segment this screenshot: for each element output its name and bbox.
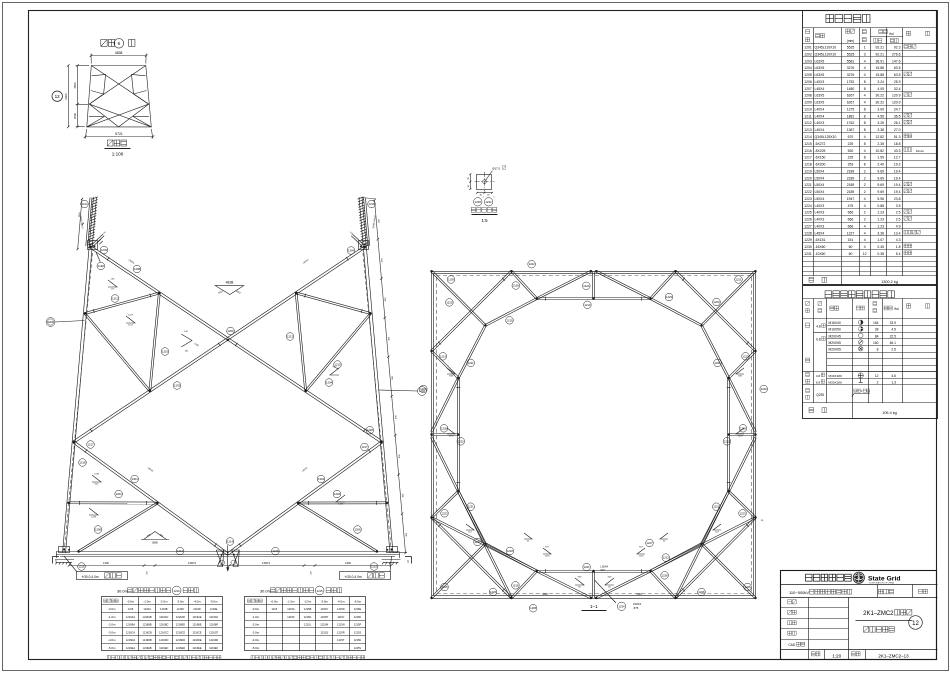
svg-text:(kg): (kg) <box>894 307 899 311</box>
svg-text:1216CF: 1216CF <box>209 630 219 634</box>
svg-text:-0.0m: -0.0m <box>252 607 260 611</box>
svg-text:19.4: 19.4 <box>894 176 901 180</box>
svg-text:1221: 1221 <box>715 361 721 365</box>
svg-text:1219: 1219 <box>804 169 812 173</box>
svg-text:4: 4 <box>864 245 866 249</box>
svg-text:1215M: 1215M <box>320 623 328 627</box>
svg-text:1213: 1213 <box>804 128 812 132</box>
svg-text:L50X4: L50X4 <box>815 176 825 180</box>
svg-text:1218: 1218 <box>80 461 86 465</box>
svg-text:160: 160 <box>873 341 879 345</box>
svg-text:875: 875 <box>634 606 639 610</box>
svg-text:L45X4: L45X4 <box>815 231 825 235</box>
svg-text:1226: 1226 <box>699 590 705 594</box>
svg-text:2.40: 2.40 <box>877 163 884 167</box>
svg-text:-5.0m: -5.0m <box>108 646 116 650</box>
svg-text:1221: 1221 <box>736 278 742 282</box>
svg-text:1203: 1203 <box>804 59 812 63</box>
svg-text:1216DB: 1216DB <box>142 638 152 642</box>
svg-text:1229: 1229 <box>804 238 812 242</box>
svg-text:9.69: 9.69 <box>877 176 884 180</box>
svg-text:-0.0m: -0.0m <box>271 599 279 603</box>
svg-text:1230: 1230 <box>804 245 812 249</box>
svg-text:1216: 1216 <box>369 202 375 206</box>
svg-text:84: 84 <box>875 334 879 338</box>
svg-text:1216BC: 1216BC <box>159 623 168 627</box>
svg-text:5.4: 5.4 <box>896 252 901 256</box>
svg-text:5.96: 5.96 <box>877 197 884 201</box>
svg-text:1216BF: 1216BF <box>209 623 218 627</box>
svg-text:-3.0m: -3.0m <box>321 599 329 603</box>
svg-text:8: 8 <box>864 121 866 125</box>
svg-text:1300: 1300 <box>345 561 351 565</box>
svg-text:Q345L125X10: Q345L125X10 <box>815 135 837 139</box>
svg-text:※30.0-4.0m: ※30.0-4.0m <box>81 575 98 579</box>
svg-text:1210: 1210 <box>162 350 168 354</box>
svg-text:1216AE: 1216AE <box>192 615 201 619</box>
svg-text:4.9: 4.9 <box>896 224 901 228</box>
svg-text:1218: 1218 <box>804 163 812 167</box>
svg-text:164: 164 <box>873 321 879 325</box>
svg-text:L63X5: L63X5 <box>815 59 825 63</box>
svg-text:1300.2 kg: 1300.2 kg <box>881 280 898 284</box>
svg-text:2189: 2189 <box>847 183 855 187</box>
svg-text:1201: 1201 <box>804 46 812 50</box>
svg-text:1347: 1347 <box>128 314 134 316</box>
svg-text:1.23: 1.23 <box>877 211 884 215</box>
svg-text:1216BE: 1216BE <box>192 623 201 627</box>
svg-text:1881: 1881 <box>847 114 855 118</box>
svg-text:3276: 3276 <box>847 66 855 70</box>
svg-text:10mm: 10mm <box>916 149 925 153</box>
svg-text:1211: 1211 <box>804 114 811 118</box>
svg-text:63.5: 63.5 <box>894 66 901 70</box>
svg-text:2189: 2189 <box>847 169 855 173</box>
svg-text:3: 3 <box>864 52 866 56</box>
svg-text:2K1–ZMC2–13: 2K1–ZMC2–13 <box>878 653 909 658</box>
svg-text:*: * <box>483 197 484 200</box>
svg-text:1: 1 <box>864 46 866 50</box>
svg-text:1304: 1304 <box>318 477 324 481</box>
svg-text:3.24: 3.24 <box>877 80 884 84</box>
svg-text:L40X3: L40X3 <box>815 80 825 84</box>
svg-text:1203: 1203 <box>761 387 767 391</box>
svg-text:1215C: 1215C <box>320 607 328 611</box>
svg-text:1216CC: 1216CC <box>159 630 169 634</box>
svg-text:Q345L110X10: Q345L110X10 <box>815 46 837 50</box>
svg-text:1222: 1222 <box>529 262 535 266</box>
svg-text:1150: 1150 <box>636 593 642 596</box>
svg-text:27.0: 27.0 <box>894 128 901 132</box>
svg-text:1227: 1227 <box>847 231 855 235</box>
svg-text:12: 12 <box>875 374 879 378</box>
svg-text:M16X40: M16X40 <box>829 321 841 325</box>
svg-text:1217: 1217 <box>475 540 481 544</box>
svg-text:1215G: 1215G <box>304 615 312 619</box>
svg-text:1216: 1216 <box>174 589 180 593</box>
svg-text:L50X4: L50X4 <box>815 197 825 201</box>
svg-text:1211: 1211 <box>112 297 118 301</box>
svg-text:M20X45: M20X45 <box>829 334 841 338</box>
svg-text:2860: 2860 <box>152 541 158 545</box>
svg-text:32.4: 32.4 <box>894 87 901 91</box>
svg-text:-1.0m: -1.0m <box>143 599 151 603</box>
svg-text:1200: 1200 <box>545 555 551 557</box>
svg-text:L40X3: L40X3 <box>815 218 825 222</box>
svg-text:1215F: 1215F <box>287 615 295 619</box>
svg-text:1210: 1210 <box>804 108 812 112</box>
svg-text:4.05: 4.05 <box>877 87 884 91</box>
svg-text:60: 60 <box>849 245 853 249</box>
svg-text:15.88: 15.88 <box>876 73 885 77</box>
svg-text:5525: 5525 <box>847 52 855 56</box>
svg-text:1.07: 1.07 <box>877 238 884 242</box>
svg-text:6267: 6267 <box>847 94 855 98</box>
svg-text:1300.5: 1300.5 <box>188 561 196 565</box>
svg-text:1215A: 1215A <box>287 607 295 611</box>
svg-text:2: 2 <box>864 218 866 222</box>
svg-text:19.4: 19.4 <box>894 190 901 194</box>
svg-text:M16X50: M16X50 <box>829 328 841 332</box>
svg-text:4: 4 <box>864 135 866 139</box>
svg-text:24.7: 24.7 <box>894 108 901 112</box>
svg-text:-10X60: -10X60 <box>815 252 826 256</box>
svg-text:1216: 1216 <box>512 583 518 587</box>
svg-text:3.36: 3.36 <box>877 231 884 235</box>
svg-text:1216CD: 1216CD <box>176 630 186 634</box>
svg-text:-0.0m: -0.0m <box>127 599 135 603</box>
svg-text:2.5: 2.5 <box>896 211 901 215</box>
svg-text:1203: 1203 <box>420 387 426 391</box>
svg-text:530: 530 <box>848 149 854 153</box>
svg-text:L63X5: L63X5 <box>815 94 825 98</box>
svg-text:10.82: 10.82 <box>876 149 885 153</box>
svg-text:1213: 1213 <box>743 354 749 358</box>
svg-text:23.8: 23.8 <box>894 197 901 201</box>
svg-text:L40X4: L40X4 <box>815 114 825 118</box>
svg-text:1215P: 1215P <box>354 623 362 627</box>
svg-text:1300.5: 1300.5 <box>262 561 270 565</box>
svg-text:M20X65: M20X65 <box>829 348 841 352</box>
svg-text:3276: 3276 <box>847 73 855 77</box>
svg-text:1215L: 1215L <box>304 623 312 627</box>
svg-text:8: 8 <box>877 348 879 352</box>
svg-text:15.88: 15.88 <box>876 66 885 70</box>
svg-text:1752: 1752 <box>847 80 855 84</box>
svg-text:1213: 1213 <box>584 303 590 307</box>
svg-text:18.8: 18.8 <box>894 142 901 146</box>
svg-text:L63X5: L63X5 <box>815 73 825 77</box>
svg-text:666: 666 <box>848 211 854 215</box>
svg-text:1.23: 1.23 <box>877 218 884 222</box>
svg-text:-1.0m: -1.0m <box>252 615 260 619</box>
svg-text:1204: 1204 <box>804 66 812 70</box>
svg-text:4: 4 <box>864 149 866 153</box>
svg-text:1216: 1216 <box>804 149 812 153</box>
svg-text:(mm): (mm) <box>847 39 854 43</box>
svg-text:2: 2 <box>864 211 866 215</box>
svg-text:1203: 1203 <box>116 492 122 496</box>
svg-text:1.23: 1.23 <box>877 224 884 228</box>
svg-text:M20X55: M20X55 <box>829 341 841 345</box>
svg-text:1203: 1203 <box>174 384 180 388</box>
svg-text:4: 4 <box>864 204 866 208</box>
svg-text:-2.0m: -2.0m <box>252 623 260 627</box>
svg-text:-6X200: -6X200 <box>815 163 826 167</box>
svg-text:1367: 1367 <box>847 128 855 132</box>
svg-text:1215Q: 1215Q <box>320 630 328 634</box>
svg-text:-6X151: -6X151 <box>815 238 826 242</box>
svg-text:X: X <box>861 389 863 393</box>
svg-text:2: 2 <box>864 190 866 194</box>
svg-text:1231: 1231 <box>804 252 812 256</box>
svg-text:666: 666 <box>848 218 854 222</box>
svg-text:2: 2 <box>877 381 879 385</box>
svg-text:151: 151 <box>848 238 854 242</box>
svg-text:1216EE: 1216EE <box>192 646 201 650</box>
svg-text:1220: 1220 <box>441 426 447 430</box>
svg-text:-0.0m: -0.0m <box>108 607 116 611</box>
svg-text:1202: 1202 <box>804 52 812 56</box>
svg-text:4: 4 <box>864 224 866 228</box>
svg-text:1226: 1226 <box>804 218 812 222</box>
svg-text:3500: 3500 <box>73 82 77 89</box>
svg-text:30.22: 30.22 <box>876 94 885 98</box>
svg-text:1201: 1201 <box>48 320 54 324</box>
svg-text:1216EB: 1216EB <box>143 646 152 650</box>
svg-text:1218: 1218 <box>507 549 513 553</box>
svg-text:92.21: 92.21 <box>876 46 885 50</box>
svg-text:1223: 1223 <box>663 556 669 560</box>
svg-text:2.35: 2.35 <box>877 142 884 146</box>
svg-text:4: 4 <box>864 73 866 77</box>
svg-text:L63X5: L63X5 <box>815 66 825 70</box>
svg-text:6000: 6000 <box>64 93 68 100</box>
svg-text:-6X272: -6X272 <box>815 142 826 146</box>
svg-text:1212: 1212 <box>287 335 293 339</box>
svg-text:12: 12 <box>912 621 919 627</box>
svg-text:2189: 2189 <box>847 176 855 180</box>
svg-text:8: 8 <box>864 156 866 160</box>
svg-text:2500: 2500 <box>73 112 77 119</box>
svg-text:1215: 1215 <box>371 565 377 569</box>
svg-text:4838: 4838 <box>115 51 123 55</box>
svg-text:5721: 5721 <box>115 132 123 136</box>
svg-text:1203: 1203 <box>101 248 107 252</box>
svg-text:8: 8 <box>864 114 866 118</box>
svg-text:1050: 1050 <box>449 435 455 437</box>
svg-text:1227: 1227 <box>804 224 812 228</box>
svg-text:1:100: 1:100 <box>112 152 124 157</box>
svg-text:8: 8 <box>864 163 866 167</box>
svg-text:1222: 1222 <box>804 190 812 194</box>
svg-text:225: 225 <box>848 156 854 160</box>
svg-text:9.69: 9.69 <box>877 183 884 187</box>
svg-text:1206: 1206 <box>804 80 812 84</box>
svg-text:3.38: 3.38 <box>877 128 884 132</box>
svg-text:1216EF: 1216EF <box>209 646 218 650</box>
svg-text:1221: 1221 <box>804 183 812 187</box>
svg-text:36.91: 36.91 <box>876 59 885 63</box>
svg-text:1223: 1223 <box>740 511 746 515</box>
svg-text:-8X225: -8X225 <box>815 149 826 153</box>
svg-text:1221: 1221 <box>468 505 474 509</box>
svg-text:1215: 1215 <box>804 142 812 146</box>
svg-text:1222: 1222 <box>724 439 730 443</box>
svg-text:1214: 1214 <box>82 202 88 206</box>
svg-text:1216CE: 1216CE <box>192 630 202 634</box>
svg-text:1.59: 1.59 <box>877 156 884 160</box>
svg-text:1216CB: 1216CB <box>142 630 152 634</box>
svg-text:30.0m: 30.0m <box>260 589 271 594</box>
svg-text:L50X4: L50X4 <box>815 183 825 187</box>
svg-text:60: 60 <box>849 252 853 256</box>
svg-text:120.9: 120.9 <box>892 101 901 105</box>
svg-text:8: 8 <box>864 87 866 91</box>
svg-text:670: 670 <box>848 135 854 139</box>
svg-text:4.8: 4.8 <box>816 325 821 329</box>
svg-text:1–1: 1–1 <box>590 604 598 609</box>
svg-text:1212: 1212 <box>804 121 812 125</box>
svg-text:1:5: 1:5 <box>481 218 488 223</box>
svg-text:30.22: 30.22 <box>876 101 885 105</box>
svg-text:0.38: 0.38 <box>877 252 884 256</box>
svg-text:1226: 1226 <box>490 590 496 594</box>
svg-text:1136: 1136 <box>513 284 519 288</box>
svg-text:1139: 1139 <box>448 278 454 282</box>
svg-text:-6X150: -6X150 <box>815 156 826 160</box>
svg-text:4838: 4838 <box>226 281 234 285</box>
svg-text:1215B: 1215B <box>304 607 312 611</box>
svg-text:1215T: 1215T <box>337 638 345 642</box>
svg-text:105.4 kg: 105.4 kg <box>882 411 897 415</box>
svg-text:475: 475 <box>848 204 854 208</box>
svg-text:-4.0m: -4.0m <box>252 638 260 642</box>
svg-text:State Grid: State Grid <box>868 575 900 582</box>
svg-text:-3.0m: -3.0m <box>177 599 185 603</box>
svg-text:1215: 1215 <box>79 565 85 569</box>
svg-text:-4.0m: -4.0m <box>337 599 345 603</box>
svg-text:1215S: 1215S <box>354 630 362 634</box>
svg-text:1227: 1227 <box>647 541 653 545</box>
svg-text:1207: 1207 <box>804 87 812 91</box>
svg-text:-1.0m: -1.0m <box>108 615 116 619</box>
svg-text:Φ17.5: Φ17.5 <box>492 166 500 170</box>
svg-text:12: 12 <box>55 94 61 99</box>
svg-text:1228: 1228 <box>804 231 812 235</box>
svg-text:Q345L110X10: Q345L110X10 <box>815 52 837 56</box>
svg-text:1223: 1223 <box>442 511 448 515</box>
svg-text:1220: 1220 <box>446 300 452 304</box>
svg-text:※30.0-4.0m: ※30.0-4.0m <box>344 575 361 579</box>
svg-text:1200: 1200 <box>542 593 548 596</box>
svg-text:1209: 1209 <box>804 101 812 105</box>
svg-text:1216AA: 1216AA <box>126 615 135 619</box>
svg-text:4: 4 <box>864 66 866 70</box>
svg-text:1223: 1223 <box>666 295 672 299</box>
svg-text:225: 225 <box>848 142 854 146</box>
svg-text:22.5: 22.5 <box>890 334 897 338</box>
svg-text:1215J: 1215J <box>337 615 345 619</box>
svg-text:4.8: 4.8 <box>816 374 821 378</box>
svg-text:19.2: 19.2 <box>894 163 901 167</box>
svg-text:4.56: 4.56 <box>877 114 884 118</box>
svg-text:25.9: 25.9 <box>894 80 901 84</box>
svg-text:1223: 1223 <box>804 197 812 201</box>
svg-text:L40X3: L40X3 <box>815 121 825 125</box>
svg-text:4.5: 4.5 <box>891 328 896 332</box>
svg-text:1217: 1217 <box>804 156 812 160</box>
svg-text:1234: 1234 <box>619 604 625 608</box>
svg-text:1216DF: 1216DF <box>209 638 219 642</box>
svg-text:51.3: 51.3 <box>894 135 901 139</box>
svg-text:1215E: 1215E <box>354 607 362 611</box>
svg-text:1214: 1214 <box>227 540 233 544</box>
svg-text:1216AF: 1216AF <box>209 615 218 619</box>
svg-text:1208: 1208 <box>804 94 812 98</box>
svg-text:0.88: 0.88 <box>877 204 884 208</box>
svg-text:1304: 1304 <box>132 477 138 481</box>
svg-text:0.45: 0.45 <box>877 245 884 249</box>
svg-text:1122: 1122 <box>128 324 133 326</box>
svg-text:1480: 1480 <box>847 87 855 91</box>
svg-text:46.1: 46.1 <box>890 341 897 345</box>
svg-text:4: 4 <box>864 101 866 105</box>
svg-text:L45X4: L45X4 <box>815 87 825 91</box>
svg-text:1217: 1217 <box>362 445 368 449</box>
svg-text:1762: 1762 <box>847 121 855 125</box>
svg-text:1217: 1217 <box>88 443 94 447</box>
svg-text:-2.0m: -2.0m <box>108 623 116 627</box>
svg-text:1216CA: 1216CA <box>126 630 136 634</box>
svg-text:8: 8 <box>864 142 866 146</box>
svg-text:L40X3: L40X3 <box>815 204 825 208</box>
svg-text:1275: 1275 <box>847 108 855 112</box>
svg-text:4: 4 <box>864 197 866 201</box>
svg-text:5525: 5525 <box>847 46 855 50</box>
svg-text:1205: 1205 <box>804 73 812 77</box>
svg-text:6.8: 6.8 <box>816 338 821 342</box>
svg-text:1304: 1304 <box>348 248 354 252</box>
svg-text:92.21: 92.21 <box>876 52 885 56</box>
svg-text:1216A: 1216A <box>143 607 151 611</box>
svg-text:1216E: 1216E <box>210 607 218 611</box>
svg-text:1208: 1208 <box>134 267 140 271</box>
svg-text:1206: 1206 <box>95 528 101 532</box>
svg-text:1215: 1215 <box>271 607 277 611</box>
svg-text:4: 4 <box>864 238 866 242</box>
svg-text:28: 28 <box>875 328 879 332</box>
svg-text:1231: 1231 <box>485 200 492 204</box>
svg-text:1216AB: 1216AB <box>143 615 152 619</box>
svg-text:9.69: 9.69 <box>877 169 884 173</box>
svg-text:L63X5: L63X5 <box>815 101 825 105</box>
svg-text:23.9: 23.9 <box>890 321 897 325</box>
svg-text:1228: 1228 <box>662 573 668 577</box>
svg-text:4: 4 <box>864 59 866 63</box>
svg-text:-5.0m: -5.0m <box>354 599 362 603</box>
svg-text:2.5: 2.5 <box>896 218 901 222</box>
svg-text:2: 2 <box>864 183 866 187</box>
svg-text:1216DC: 1216DC <box>159 638 169 642</box>
svg-text:1215: 1215 <box>317 589 323 593</box>
svg-text:1209: 1209 <box>228 329 234 333</box>
svg-text:1220: 1220 <box>714 300 720 304</box>
svg-text:1216DA: 1216DA <box>126 638 136 642</box>
svg-text:19.4: 19.4 <box>894 169 901 173</box>
svg-text:12.82: 12.82 <box>876 135 885 139</box>
svg-text:1216AD: 1216AD <box>176 615 185 619</box>
